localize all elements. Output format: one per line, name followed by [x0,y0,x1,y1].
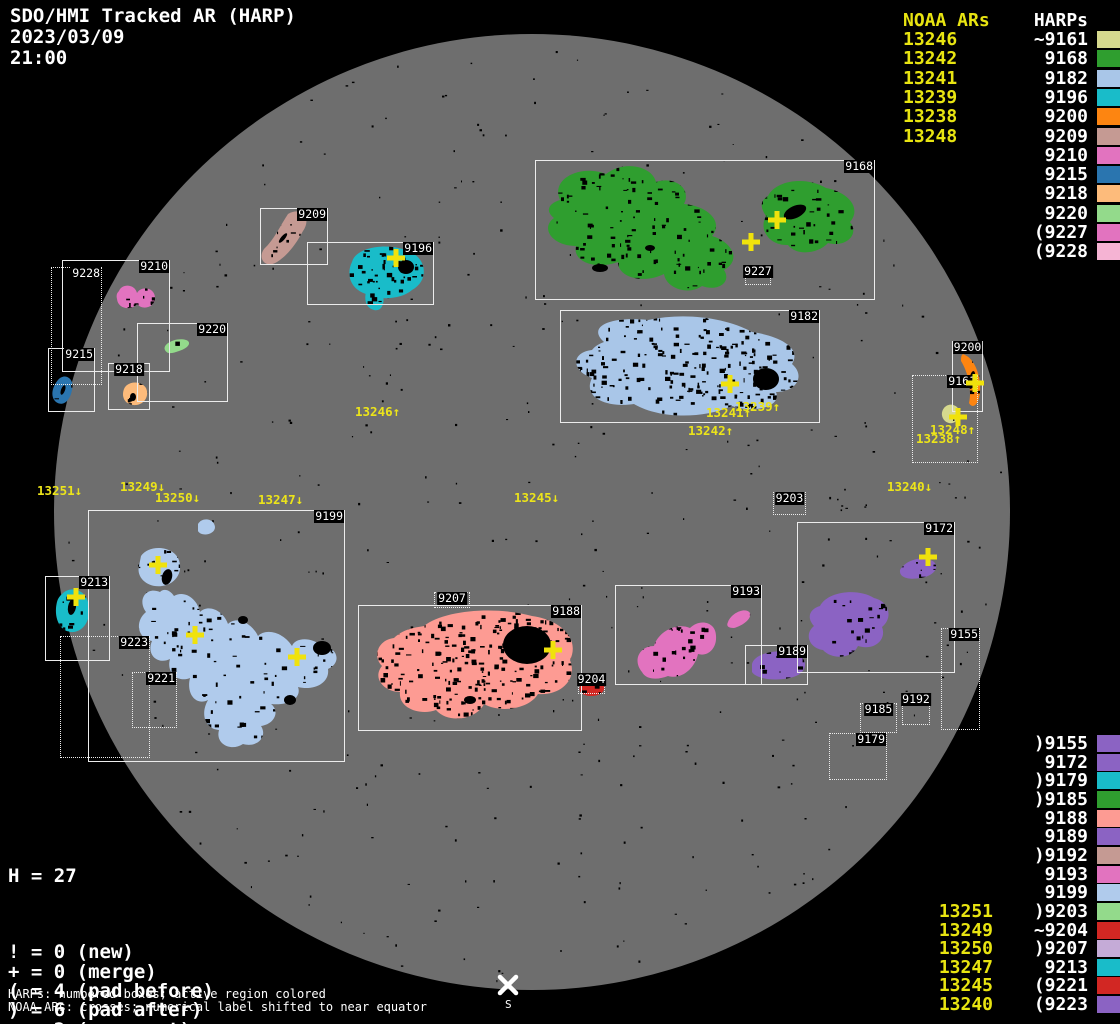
harp-item-9223: (9223 [1034,995,1088,1014]
harp-box-label-9155: 9155 [949,628,979,641]
harp-box-9182: 9182 [560,310,820,423]
harp-color-swatch-9185 [1097,791,1120,808]
harp-item-9182: 9182 [1045,69,1088,88]
legend-line-0: ! = 0 (new) [8,943,225,962]
harp-box-label-9223: 9223 [119,636,149,649]
harp-box-label-9210: 9210 [139,260,169,273]
harp-box-9196: 9196 [307,242,434,305]
noaa-ar-item-13238: 13238 [903,107,957,126]
harp-color-swatch-9221 [1097,977,1120,994]
noaa-ar-label-13245: 13245↓ [514,491,559,504]
harp-item-9199: 9199 [1045,883,1088,902]
harp-visualization: 9168922791829209919692289210922092159218… [0,0,1120,1024]
noaa-ar-item-13248: 13248 [903,127,957,146]
harp-box-label-9161: 9161 [947,375,977,388]
noaa-ar-item-13250: 13250 [903,939,993,958]
harp-item-9189: 9189 [1045,827,1088,846]
title-line1: SDO/HMI Tracked AR (HARP) [10,5,296,27]
harp-box-9220: 9220 [137,323,228,402]
noaa-ar-item-13251: 13251 [903,902,993,921]
harp-item-9210: 9210 [1045,146,1088,165]
harp-box-label-9218: 9218 [114,363,144,376]
south-pole-label: S [505,998,512,1011]
harp-color-swatch-9188 [1097,810,1120,827]
harp-box-label-9179: 9179 [856,733,886,746]
harp-color-swatch-9182 [1097,70,1120,87]
harp-item-9207: )9207 [1034,939,1088,958]
harp-box-label-9196: 9196 [403,242,433,255]
harp-item-9155: )9155 [1034,734,1088,753]
noaa-ar-label-13246: 13246↑ [355,405,400,418]
noaa-ar-item-13239: 13239 [903,88,957,107]
harp-color-swatch-9155 [1097,735,1120,752]
harp-color-swatch-9179 [1097,772,1120,789]
harp-box-9172: 9172 [797,522,955,673]
harp-color-swatch-9172 [1097,754,1120,771]
harp-color-swatch-9207 [1097,940,1120,957]
harp-box-9204: 9204 [578,673,605,694]
harps-header: HARPs [1034,10,1088,31]
plot-title: SDO/HMI Tracked AR (HARP) 2023/03/09 21:… [10,6,296,69]
harp-color-swatch-9228 [1097,243,1120,260]
harp-color-swatch-9218 [1097,185,1120,202]
noaa-ar-label-13240: 13240↓ [887,480,932,493]
harp-box-label-9172: 9172 [924,522,954,535]
noaa-ar-item-13241: 13241 [903,69,957,88]
harp-color-swatch-9200 [1097,108,1120,125]
noaa-ars-header: NOAA ARs [903,10,990,31]
harp-box-label-9203: 9203 [775,492,805,505]
footer-captions: HARPs: numbered boxes; active region col… [8,988,427,1013]
harp-item-9192: )9192 [1034,846,1088,865]
harp-item-9196: 9196 [1045,88,1088,107]
harp-color-swatch-9209 [1097,128,1120,145]
harp-color-swatch-9223 [1097,996,1120,1013]
harp-item-9161: ~9161 [1034,30,1088,49]
harp-color-swatch-9192 [1097,847,1120,864]
harp-color-swatch-9199 [1097,884,1120,901]
harp-box-label-9209: 9209 [297,208,327,221]
harp-box-9203: 9203 [773,492,806,515]
harp-box-label-9182: 9182 [789,310,819,323]
harp-box-label-9185: 9185 [864,703,894,716]
harp-item-9200: 9200 [1045,107,1088,126]
harp-box-label-9188: 9188 [551,605,581,618]
harp-item-9218: 9218 [1045,184,1088,203]
harp-box-9193: 9193 [615,585,762,685]
harp-box-9215: 9215 [48,348,95,412]
harp-box-9168: 9168 [535,160,875,300]
harp-item-9220: 9220 [1045,204,1088,223]
harp-item-9168: 9168 [1045,49,1088,68]
harp-box-label-9221: 9221 [146,672,176,685]
harp-box-9192: 9192 [902,693,930,725]
harp-box-9185: 9185 [860,703,897,733]
harp-color-swatch-9227 [1097,224,1120,241]
noaa-ar-label-13238: 13238↑ [916,432,961,445]
harp-box-9179: 9179 [829,733,887,780]
harp-color-swatch-9189 [1097,828,1120,845]
harp-box-9227: 9227 [745,265,771,285]
harp-box-9155: 9155 [941,628,980,730]
harp-color-swatch-9220 [1097,205,1120,222]
harp-box-label-9227: 9227 [743,265,773,278]
harp-box-9161: 9161 [912,375,978,463]
harp-color-swatch-9213 [1097,959,1120,976]
noaa-ar-label-13247: 13247↓ [258,493,303,506]
harp-item-9203: )9203 [1034,902,1088,921]
harp-item-9228: (9228 [1034,242,1088,261]
harp-item-9227: (9227 [1034,223,1088,242]
noaa-ar-item-13246: 13246 [903,30,957,49]
harp-box-label-9204: 9204 [577,673,607,686]
harp-item-9209: 9209 [1045,127,1088,146]
harp-box-label-9220: 9220 [197,323,227,336]
title-time: 21:00 [10,47,67,69]
title-date: 2023/03/09 [10,26,124,48]
harp-color-swatch-9193 [1097,866,1120,883]
harp-box-label-9213: 9213 [79,576,109,589]
harp-box-label-9207: 9207 [437,592,467,605]
noaa-ar-item-13245: 13245 [903,976,993,995]
noaa-ar-label-13251: 13251↓ [37,484,82,497]
harp-color-swatch-9210 [1097,147,1120,164]
harp-box-label-9215: 9215 [64,348,94,361]
noaa-ar-label-13250: 13250↓ [155,491,200,504]
harp-item-9215: 9215 [1045,165,1088,184]
harp-color-swatch-9168 [1097,50,1120,67]
harp-item-9221: (9221 [1034,976,1088,995]
harp-box-9218: 9218 [108,363,150,410]
harp-box-label-9200: 9200 [953,341,983,354]
harp-box-label-9192: 9192 [901,693,931,706]
harp-box-9188: 9188 [358,605,582,731]
harp-item-9185: )9185 [1034,790,1088,809]
caption-noaa: NOAA ARs: crosses; numerical label shift… [8,1000,427,1014]
harp-box-label-9199: 9199 [314,510,344,523]
noaa-ar-label-13242: 13242↑ [688,424,733,437]
harp-count: H = 27 [8,867,225,886]
harp-color-swatch-9215 [1097,166,1120,183]
harp-box-label-9168: 9168 [844,160,874,173]
noaa-ar-item-13240: 13240 [903,995,993,1014]
noaa-ar-label-13241: 13241↑ [706,406,751,419]
harp-item-9179: )9179 [1034,771,1088,790]
harp-color-swatch-9203 [1097,903,1120,920]
noaa-ar-item-13242: 13242 [903,49,957,68]
harp-color-swatch-9196 [1097,89,1120,106]
harp-color-swatch-9204 [1097,922,1120,939]
harp-box-9221: 9221 [132,672,177,728]
harp-color-swatch-9161 [1097,31,1120,48]
harp-box-label-9193: 9193 [731,585,761,598]
